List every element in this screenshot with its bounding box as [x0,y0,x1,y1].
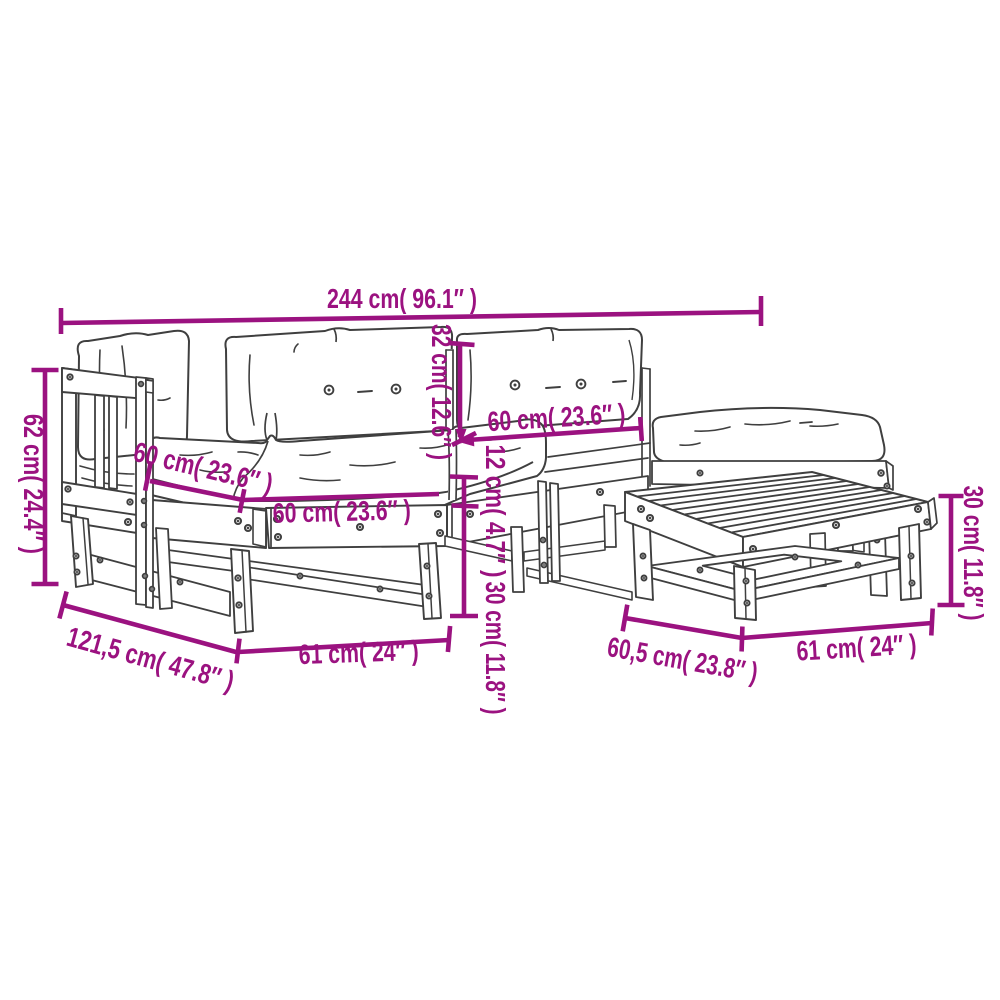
svg-text:30 cm( 11.8″ ): 30 cm( 11.8″ ) [480,582,511,715]
svg-text:12 cm( 4.7″ ): 12 cm( 4.7″ ) [480,445,511,578]
svg-text:30 cm( 11.8″ ): 30 cm( 11.8″ ) [958,486,989,621]
svg-text:32 cm( 12.6″ ): 32 cm( 12.6″ ) [426,324,457,460]
svg-text:60 cm( 23.6″ ): 60 cm( 23.6″ ) [272,494,411,529]
svg-text:244 cm( 96.1″ ): 244 cm( 96.1″ ) [327,283,477,314]
svg-text:62 cm( 24.4″ ): 62 cm( 24.4″ ) [18,414,49,554]
svg-text:61 cm( 24″ ): 61 cm( 24″ ) [298,635,419,670]
